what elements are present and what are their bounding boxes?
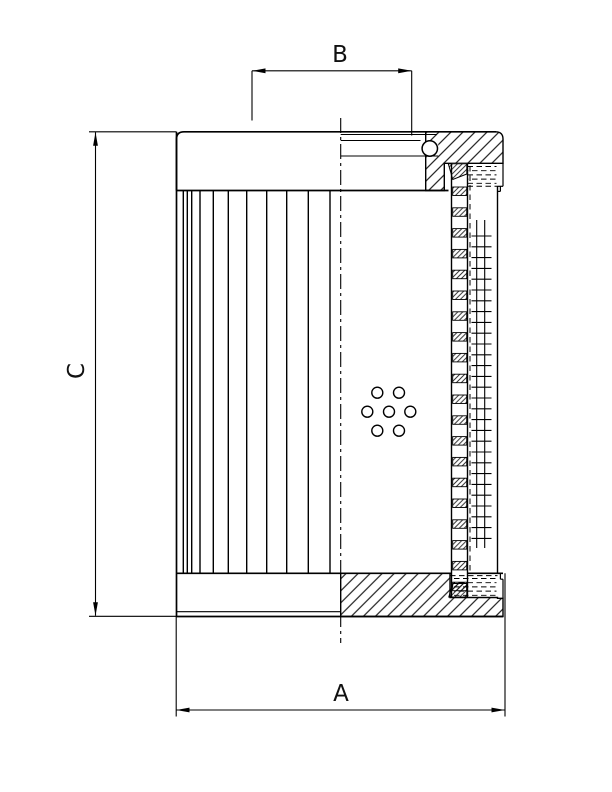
strip-block <box>453 416 467 425</box>
strip-block <box>453 353 467 362</box>
bottom-cap-hatch <box>341 573 503 616</box>
hole-circle <box>372 387 383 398</box>
strip-block <box>453 374 467 383</box>
strip-block <box>453 478 467 487</box>
strip-block <box>453 187 467 196</box>
inner-tube-holes <box>362 387 416 436</box>
strip-block <box>453 291 467 300</box>
strip-block <box>453 437 467 446</box>
dim-c-label: C <box>64 363 90 379</box>
technical-drawing: B C A <box>0 0 612 792</box>
hole-circle <box>405 406 416 417</box>
strip-block <box>453 208 467 217</box>
strip-block <box>453 229 467 238</box>
strip-block <box>453 270 467 279</box>
hole-circle <box>394 387 405 398</box>
dim-b-label: B <box>332 42 348 68</box>
support-mesh <box>472 220 492 548</box>
strip-block <box>453 499 467 508</box>
drawing-page: B C A <box>0 0 612 792</box>
strip-block <box>453 457 467 466</box>
strip-block <box>453 541 467 550</box>
hole-circle <box>362 406 373 417</box>
hole-circle <box>394 425 405 436</box>
strip-block <box>453 520 467 529</box>
filter-pleats <box>183 191 330 574</box>
hole-circle <box>384 406 395 417</box>
strip-block <box>453 582 467 591</box>
strip-block <box>453 249 467 258</box>
dim-a-label: A <box>333 681 349 707</box>
dimension-b: B <box>252 42 412 136</box>
dimension-c: C <box>64 132 177 617</box>
seal-felt-top <box>468 167 497 184</box>
hole-circle <box>372 425 383 436</box>
strip-block <box>453 312 467 321</box>
strip-block <box>453 333 467 342</box>
strip-block <box>453 395 467 404</box>
oring-icon <box>422 141 437 156</box>
strip-block <box>453 561 467 570</box>
